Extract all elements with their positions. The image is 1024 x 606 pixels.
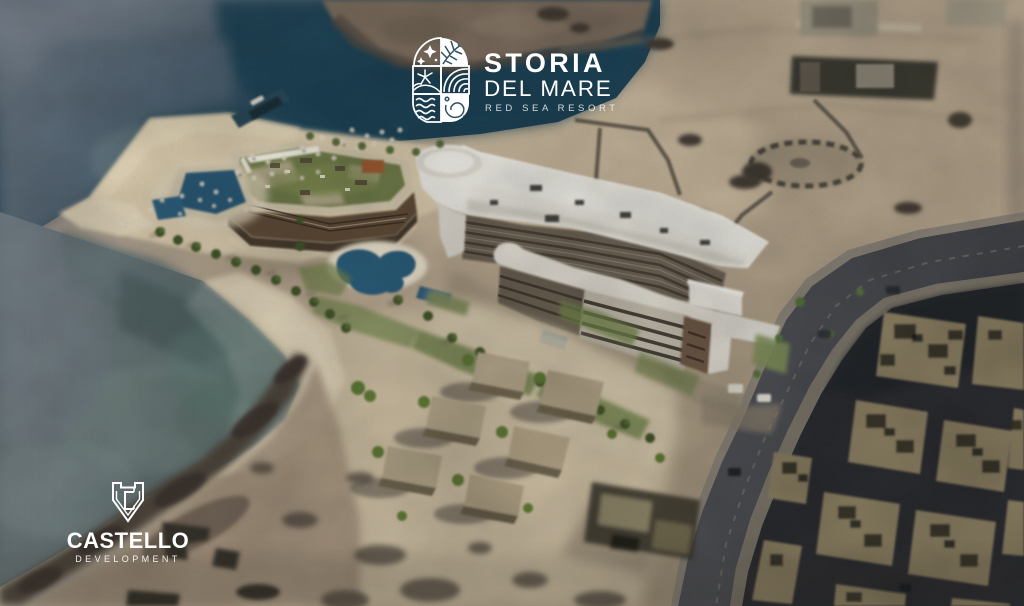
svg-text:DEL MARE: DEL MARE xyxy=(484,76,613,101)
svg-text:STORIA: STORIA xyxy=(484,48,606,78)
svg-text:CASTELLO: CASTELLO xyxy=(67,528,190,553)
svg-text:RED SEA RESORT: RED SEA RESORT xyxy=(485,103,619,114)
svg-text:DEVELOPMENT: DEVELOPMENT xyxy=(75,554,180,564)
